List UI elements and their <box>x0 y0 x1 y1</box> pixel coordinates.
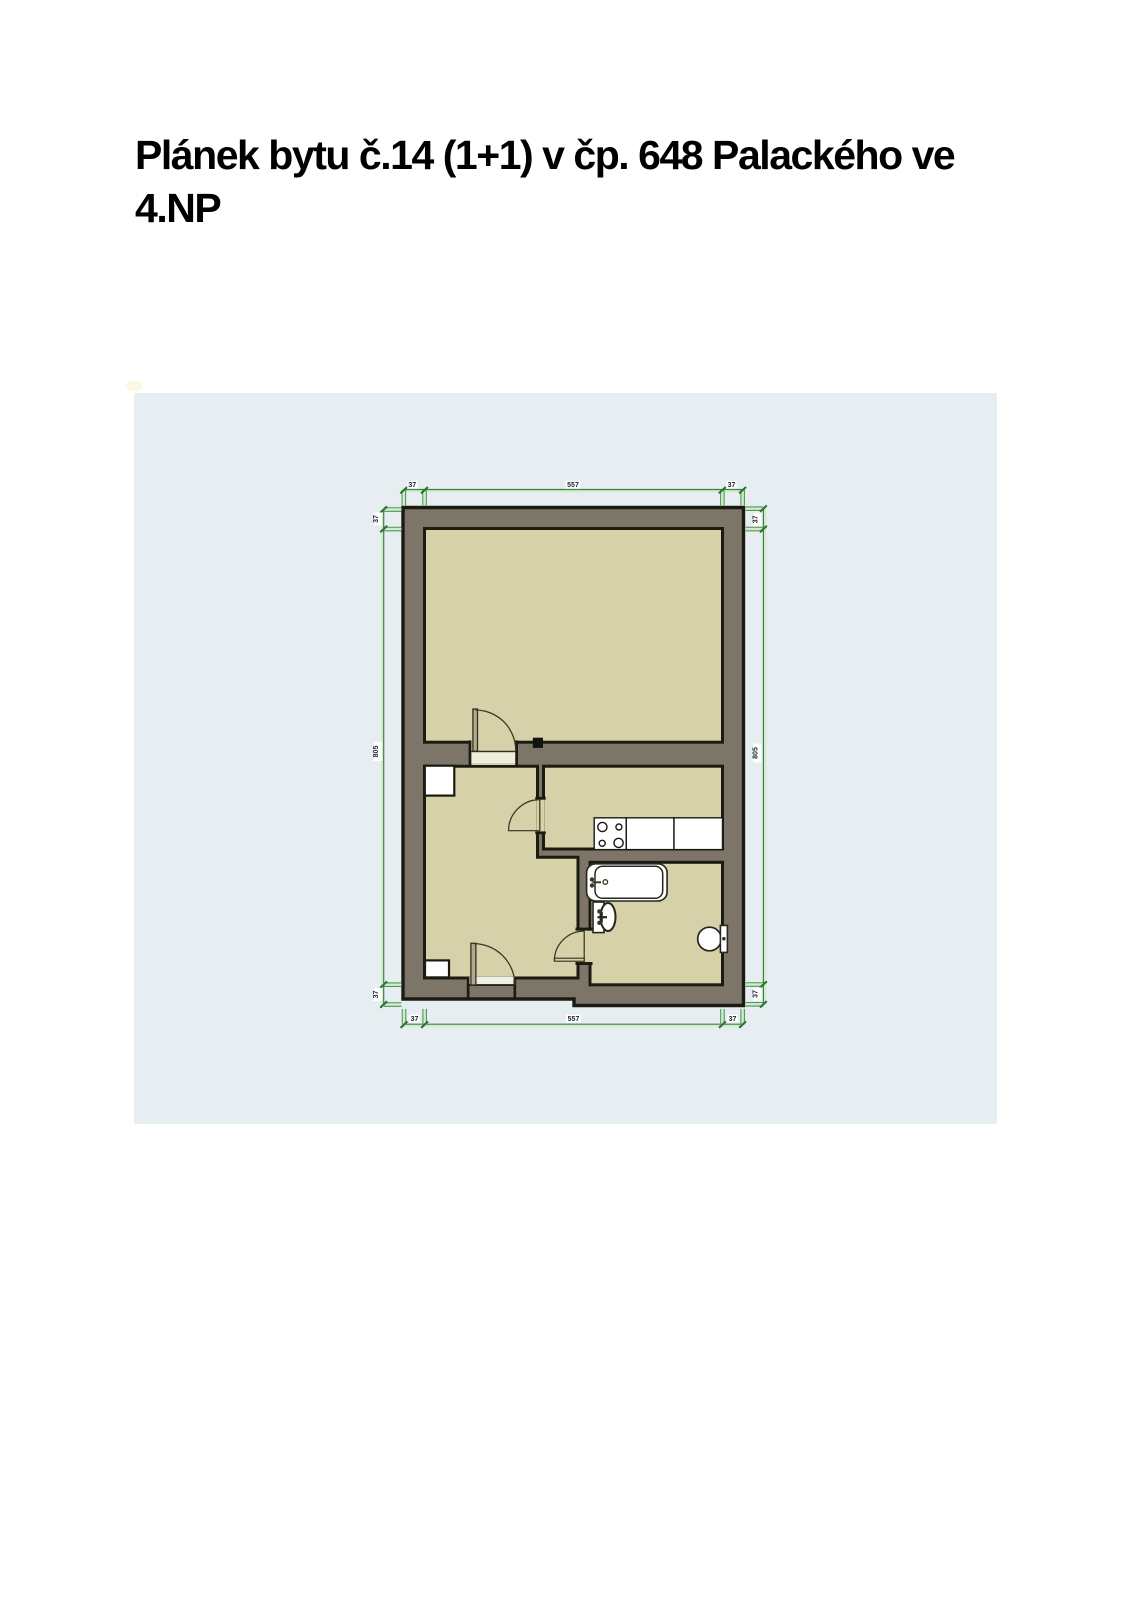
svg-text:557: 557 <box>568 1016 580 1023</box>
svg-text:37: 37 <box>411 1016 419 1023</box>
svg-text:805: 805 <box>373 746 380 758</box>
svg-text:805: 805 <box>752 747 759 759</box>
svg-text:37: 37 <box>728 482 736 489</box>
svg-text:37: 37 <box>752 990 759 998</box>
svg-text:37: 37 <box>729 1016 737 1023</box>
svg-text:37: 37 <box>373 515 380 523</box>
svg-text:37: 37 <box>373 991 380 999</box>
svg-text:37: 37 <box>408 482 416 489</box>
svg-text:557: 557 <box>567 482 579 489</box>
svg-text:37: 37 <box>752 515 759 523</box>
